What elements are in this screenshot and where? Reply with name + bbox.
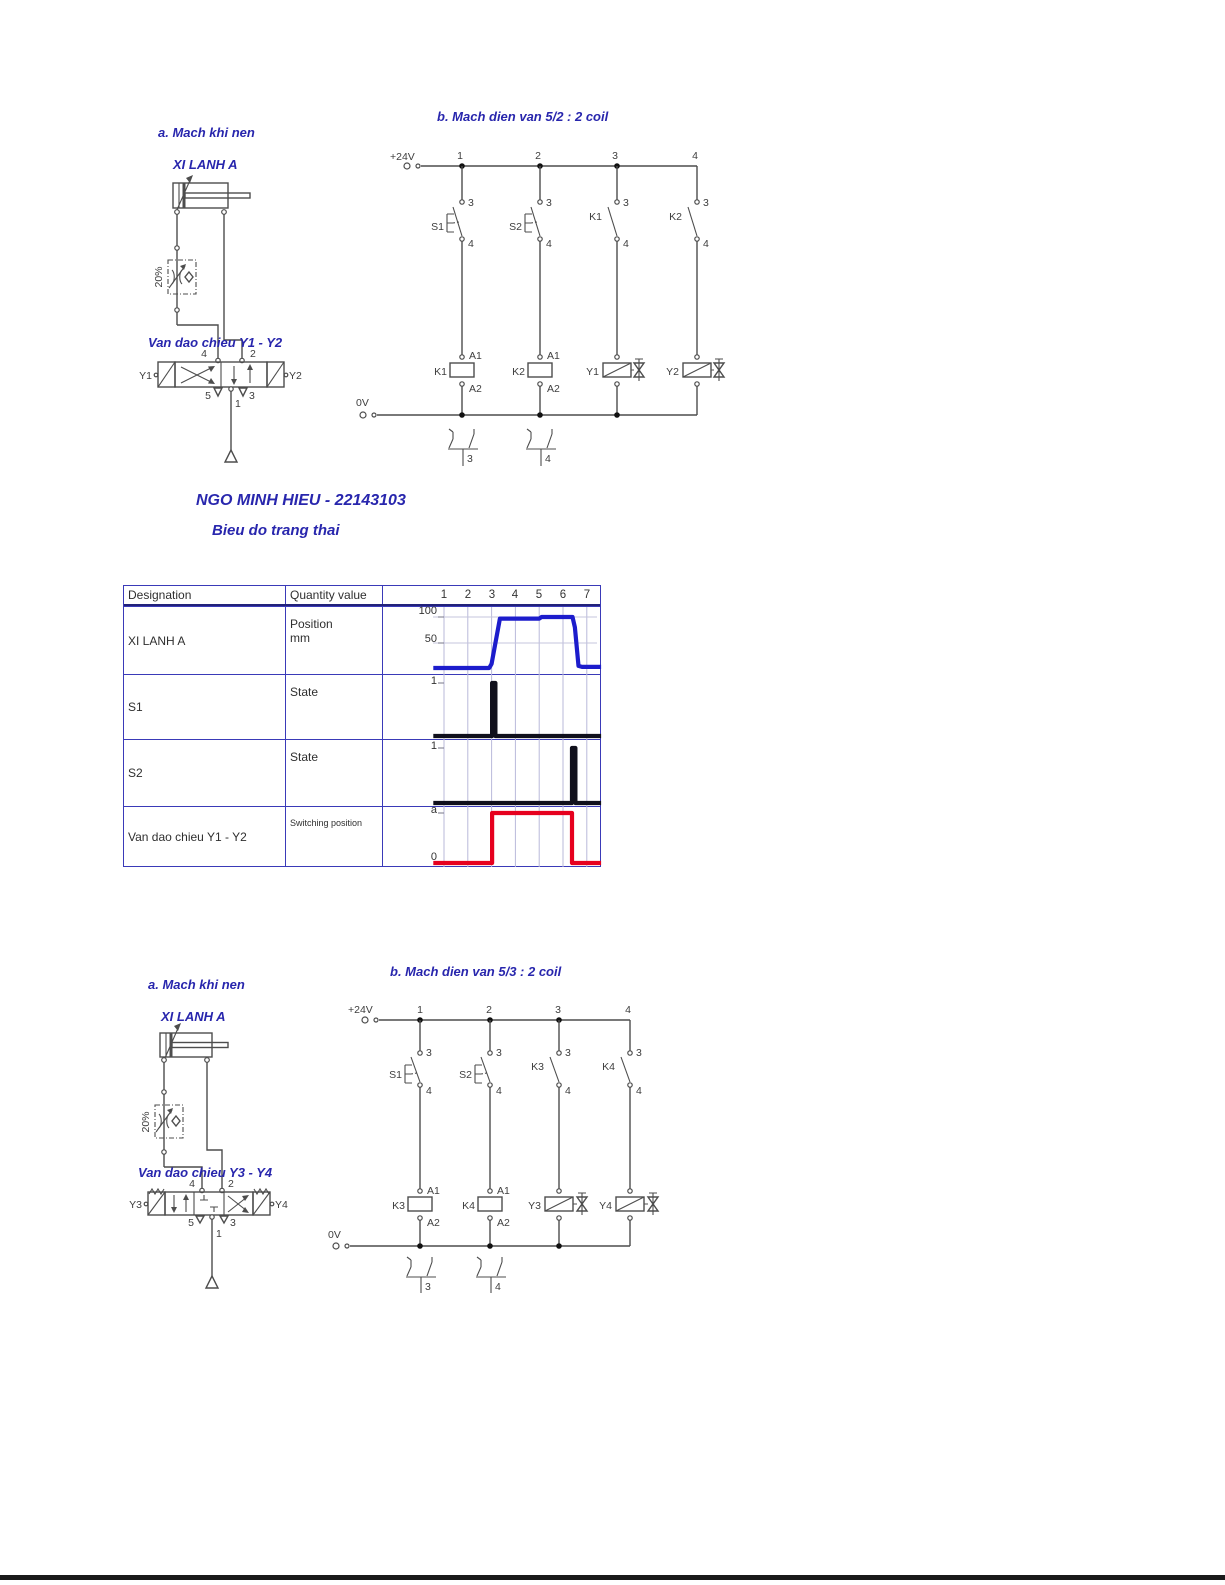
contact-ref-k4: 4 <box>476 1257 506 1293</box>
svg-text:5: 5 <box>205 390 211 402</box>
solenoid-y1: Y1 <box>586 355 644 415</box>
svg-text:2: 2 <box>228 1178 234 1190</box>
svg-text:4: 4 <box>468 238 474 250</box>
s2-state-chart <box>383 740 600 807</box>
svg-text:3: 3 <box>230 1217 236 1229</box>
svg-text:S2: S2 <box>459 1069 472 1081</box>
contact-s2: S2 3 4 <box>459 1020 502 1189</box>
svg-text:K4: K4 <box>462 1200 475 1212</box>
leader-arrow-icon <box>165 1023 181 1058</box>
top-pneumatic-diagram: a. Mach khi nen XI LANH A 20% Van dao ch… <box>118 115 318 475</box>
negative-rail-label: 0V <box>356 397 369 409</box>
solenoid-left-label: Y1 <box>139 370 152 382</box>
svg-text:3: 3 <box>426 1047 432 1059</box>
solenoid-left-label: Y3 <box>129 1199 142 1211</box>
position-chart <box>383 607 600 675</box>
svg-text:4: 4 <box>546 238 552 250</box>
cylinder-label: XI LANH A <box>160 1009 226 1024</box>
state-diagram-title: Bieu do trang thai <box>212 522 340 539</box>
svg-text:3: 3 <box>565 1047 571 1059</box>
svg-text:3: 3 <box>249 390 255 402</box>
svg-text:A2: A2 <box>547 383 560 395</box>
svg-text:A2: A2 <box>427 1217 440 1229</box>
svg-text:4: 4 <box>496 1085 502 1097</box>
svg-text:2: 2 <box>486 1004 492 1016</box>
quantity-label: State <box>290 685 318 699</box>
svg-text:4: 4 <box>545 453 551 465</box>
contact-ref-k2: 4 <box>526 429 556 466</box>
solenoid-right-label: Y4 <box>275 1199 288 1211</box>
col-header-quantity: Quantity value <box>286 586 383 604</box>
quantity-label: Switching position <box>290 818 362 828</box>
contact-k2: K2 3 4 <box>669 166 709 355</box>
svg-text:Y1: Y1 <box>586 366 599 378</box>
contact-k4: K4 3 4 <box>602 1020 642 1189</box>
contact-ref-k1: 3 <box>448 429 478 466</box>
svg-text:A2: A2 <box>497 1217 510 1229</box>
svg-text:2: 2 <box>535 150 541 162</box>
circuit-title: b. Mach dien van 5/3 : 2 coil <box>390 964 562 979</box>
svg-text:K2: K2 <box>512 366 525 378</box>
svg-text:3: 3 <box>468 197 474 209</box>
circuit-title: b. Mach dien van 5/2 : 2 coil <box>437 109 609 124</box>
svg-text:Y4: Y4 <box>599 1200 612 1212</box>
svg-text:4: 4 <box>703 238 709 250</box>
row-designation: S1 <box>124 675 286 739</box>
cylinder-symbol <box>173 183 250 214</box>
valve-label: Van dao chieu Y1 - Y2 <box>148 335 283 350</box>
solenoid-y4: Y4 <box>599 1189 658 1246</box>
bottom-electrical-diagram: b. Mach dien van 5/3 : 2 coil +24V 1 2 3… <box>325 955 745 1300</box>
relay-coil-k1: A1 K1 A2 <box>434 350 482 415</box>
quantity-label: Position <box>290 617 333 631</box>
positive-rail-label: +24V <box>390 151 415 163</box>
quantity-label: State <box>290 750 318 764</box>
solenoid-y2: Y2 <box>666 355 724 415</box>
chart-cell-valve: a 0 <box>383 807 600 866</box>
svg-text:A1: A1 <box>469 350 482 362</box>
svg-text:2: 2 <box>250 348 256 360</box>
svg-text:3: 3 <box>467 453 473 465</box>
solenoid-right-label: Y2 <box>289 370 302 382</box>
svg-text:3: 3 <box>546 197 552 209</box>
svg-text:4: 4 <box>623 238 629 250</box>
svg-text:3: 3 <box>636 1047 642 1059</box>
svg-text:1: 1 <box>216 1228 222 1240</box>
svg-text:4: 4 <box>636 1085 642 1097</box>
chart-cell-s2: 1 <box>383 740 600 806</box>
relay-coil-k4: A1 K4 A2 <box>462 1185 510 1246</box>
svg-text:Y3: Y3 <box>528 1200 541 1212</box>
svg-text:3: 3 <box>496 1047 502 1059</box>
svg-text:3: 3 <box>612 150 618 162</box>
section-title: a. Mach khi nen <box>148 977 245 992</box>
flow-percent-label: 20% <box>140 1111 152 1132</box>
bottom-pneumatic-diagram: a. Mach khi nen XI LANH A 20% Van dao ch… <box>118 965 318 1300</box>
contact-ref-k3: 3 <box>406 1257 436 1293</box>
positive-rail-label: +24V <box>348 1004 373 1016</box>
relay-coil-k3: A1 K3 A2 <box>392 1185 440 1246</box>
valve-label: Van dao chieu Y3 - Y4 <box>138 1165 273 1180</box>
svg-text:K4: K4 <box>602 1061 615 1073</box>
svg-text:K1: K1 <box>589 211 602 223</box>
valve-position-chart <box>383 807 600 867</box>
top-electrical-diagram: b. Mach dien van 5/2 : 2 coil +24V 1 2 3… <box>350 100 760 480</box>
contact-s2: S2 3 4 <box>509 166 552 355</box>
svg-text:1: 1 <box>235 398 241 410</box>
svg-text:4: 4 <box>426 1085 432 1097</box>
svg-text:4: 4 <box>495 1281 501 1293</box>
row-designation: XI LANH A <box>124 607 286 674</box>
svg-text:4: 4 <box>565 1085 571 1097</box>
svg-text:A1: A1 <box>497 1185 510 1197</box>
svg-text:4: 4 <box>189 1178 195 1190</box>
svg-text:A1: A1 <box>427 1185 440 1197</box>
svg-text:S1: S1 <box>389 1069 402 1081</box>
contact-k3: K3 3 4 <box>531 1020 571 1189</box>
svg-text:1: 1 <box>417 1004 423 1016</box>
contact-s1: S1 3 4 <box>431 166 474 355</box>
negative-rail-label: 0V <box>328 1229 341 1241</box>
svg-text:K2: K2 <box>669 211 682 223</box>
col-header-designation: Designation <box>124 586 286 604</box>
svg-text:A1: A1 <box>547 350 560 362</box>
svg-text:3: 3 <box>425 1281 431 1293</box>
solenoid-y3: Y3 <box>528 1189 587 1246</box>
contact-s1: S1 3 4 <box>389 1020 432 1189</box>
svg-text:4: 4 <box>692 150 698 162</box>
valve-5-3-symbol: 4 2 Y3 Y4 5 1 3 <box>129 1178 288 1240</box>
svg-text:3: 3 <box>623 197 629 209</box>
flow-control-valve-symbol: 20% <box>153 214 196 325</box>
cylinder-label: XI LANH A <box>172 157 238 172</box>
svg-text:Y2: Y2 <box>666 366 679 378</box>
svg-text:4: 4 <box>201 348 207 360</box>
row-designation: S2 <box>124 740 286 806</box>
svg-text:1: 1 <box>457 150 463 162</box>
chart-cell-position: 100 50 <box>383 607 600 674</box>
svg-text:5: 5 <box>188 1217 194 1229</box>
valve-5-2-symbol: 4 2 Y1 Y2 5 1 3 <box>139 348 302 410</box>
svg-text:A2: A2 <box>469 383 482 395</box>
cylinder-symbol <box>160 1033 228 1062</box>
flow-control-valve-symbol: 20% <box>140 1062 183 1167</box>
svg-text:K3: K3 <box>531 1061 544 1073</box>
row-designation: Van dao chieu Y1 - Y2 <box>124 807 286 866</box>
relay-coil-k2: A1 K2 A2 <box>512 350 560 415</box>
student-name: NGO MINH HIEU - 22143103 <box>196 492 406 510</box>
svg-text:S1: S1 <box>431 221 444 233</box>
flow-perc到-label: 20% <box>153 266 165 287</box>
svg-text:4: 4 <box>625 1004 631 1016</box>
svg-text:K1: K1 <box>434 366 447 378</box>
page-bottom-rule <box>0 1575 1225 1580</box>
unit-label: mm <box>290 631 310 645</box>
svg-text:K3: K3 <box>392 1200 405 1212</box>
svg-text:3: 3 <box>555 1004 561 1016</box>
section-title: a. Mach khi nen <box>158 125 255 140</box>
state-diagram-table: Designation Quantity value 1 2 3 4 5 6 7… <box>123 585 601 867</box>
contact-k1: K1 3 4 <box>589 166 629 355</box>
svg-text:3: 3 <box>703 197 709 209</box>
chart-x-axis: 1 2 3 4 5 6 7 <box>383 586 600 604</box>
svg-text:S2: S2 <box>509 221 522 233</box>
s1-state-chart <box>383 675 600 740</box>
chart-cell-s1: 1 <box>383 675 600 739</box>
